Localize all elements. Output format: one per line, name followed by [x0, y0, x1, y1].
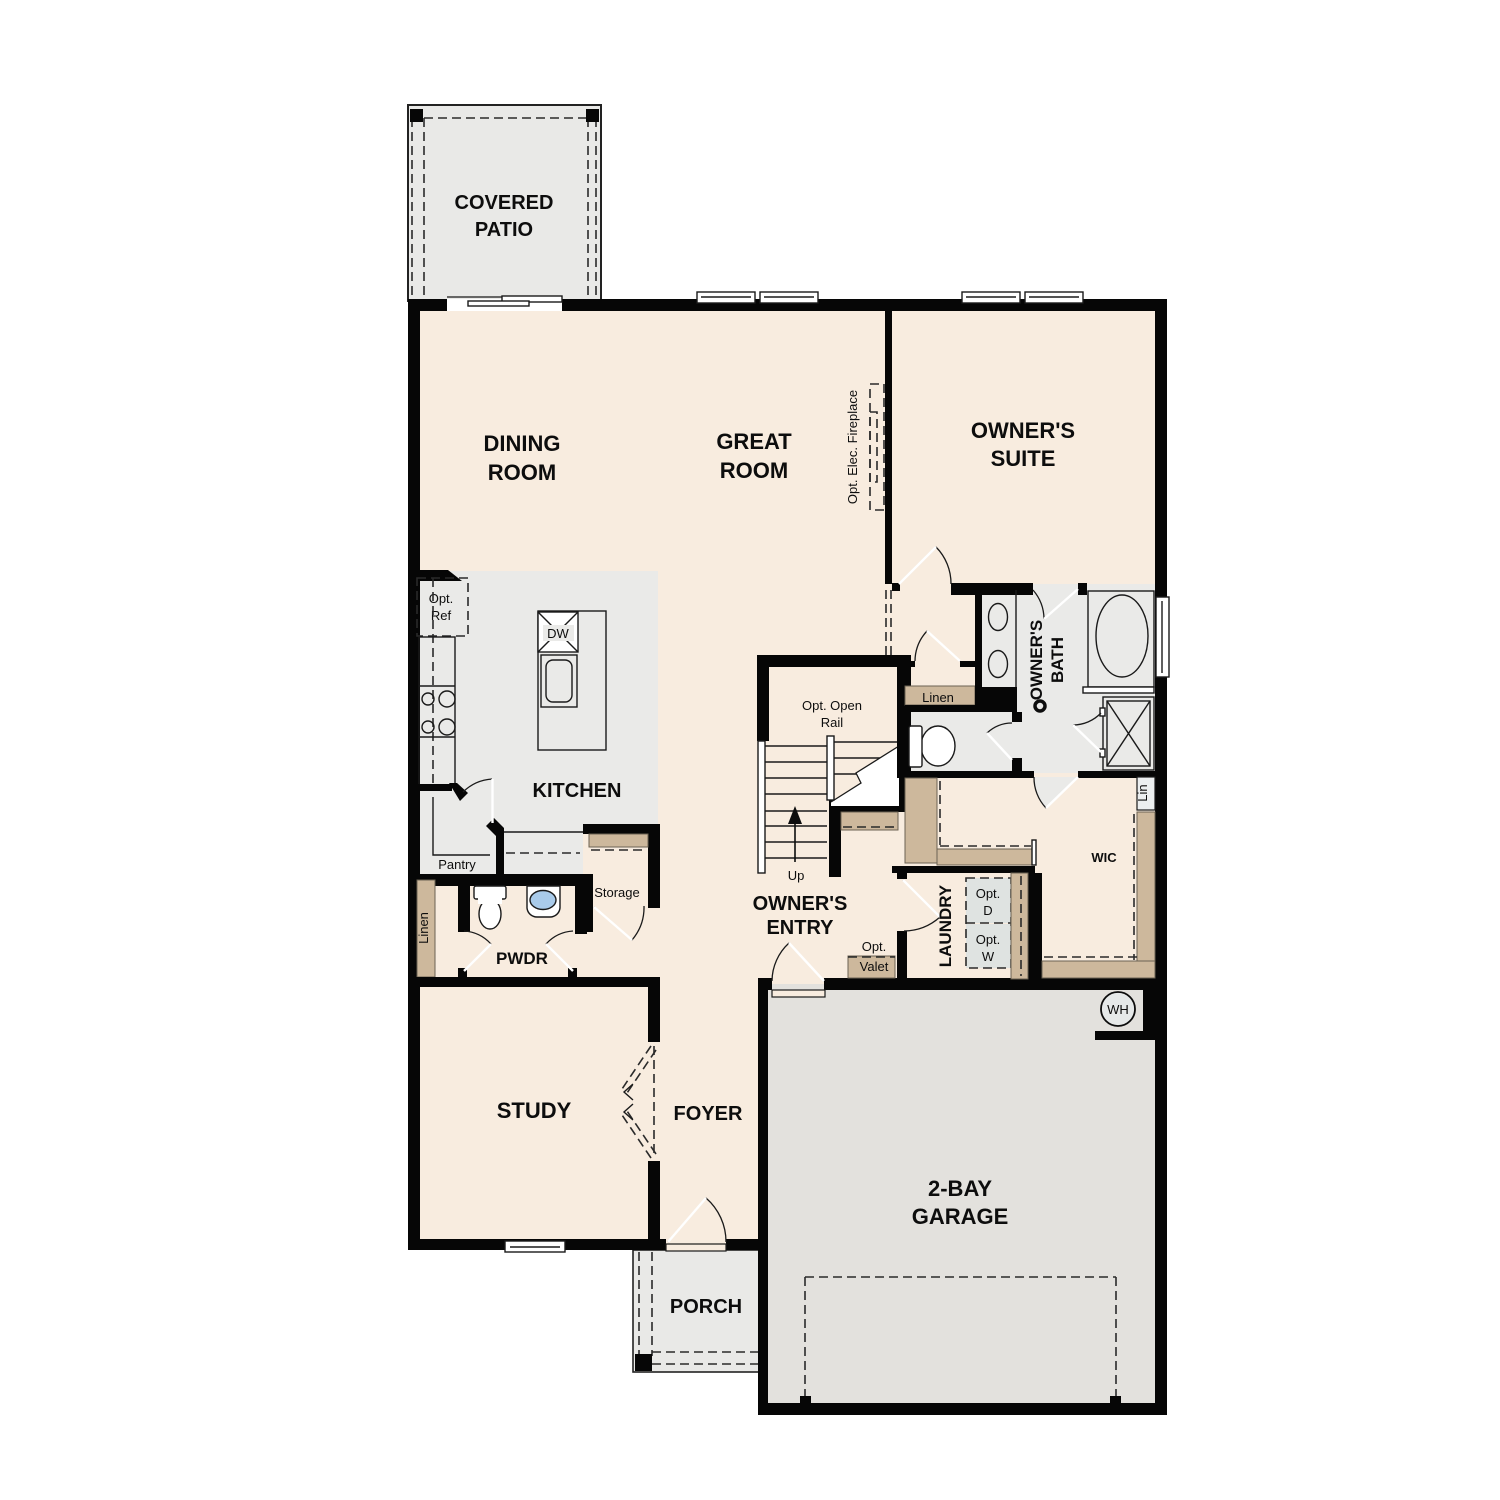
svg-text:W: W — [982, 949, 995, 964]
svg-text:OWNER'S: OWNER'S — [971, 418, 1075, 443]
svg-text:SUITE: SUITE — [991, 446, 1056, 471]
svg-text:D: D — [983, 903, 992, 918]
svg-text:DW: DW — [547, 626, 569, 641]
svg-text:PATIO: PATIO — [475, 219, 533, 241]
svg-text:ENTRY: ENTRY — [766, 917, 834, 939]
svg-text:Lin: Lin — [1135, 784, 1150, 801]
svg-text:Rail: Rail — [821, 715, 844, 730]
svg-text:GREAT: GREAT — [716, 429, 792, 454]
svg-text:BATH: BATH — [1048, 637, 1067, 683]
svg-text:OWNER'S: OWNER'S — [753, 893, 848, 915]
svg-text:WH: WH — [1107, 1002, 1129, 1017]
svg-text:FOYER: FOYER — [674, 1103, 743, 1125]
svg-text:Opt. Open: Opt. Open — [802, 698, 862, 713]
svg-text:WIC: WIC — [1091, 850, 1117, 865]
svg-text:DINING: DINING — [484, 431, 561, 456]
svg-text:LAUNDRY: LAUNDRY — [936, 884, 955, 967]
svg-text:OWNER'S: OWNER'S — [1027, 620, 1046, 701]
svg-text:COVERED: COVERED — [455, 192, 554, 214]
svg-text:PORCH: PORCH — [670, 1296, 742, 1318]
svg-text:STUDY: STUDY — [497, 1098, 572, 1123]
svg-text:Opt. Elec. Fireplace: Opt. Elec. Fireplace — [845, 390, 860, 504]
svg-text:Valet: Valet — [860, 959, 889, 974]
svg-text:Linen: Linen — [416, 912, 431, 944]
svg-text:ROOM: ROOM — [488, 460, 556, 485]
svg-text:2-BAY: 2-BAY — [928, 1176, 992, 1201]
svg-text:Pantry: Pantry — [438, 857, 476, 872]
svg-text:Storage: Storage — [594, 885, 640, 900]
svg-text:GARAGE: GARAGE — [912, 1204, 1009, 1229]
svg-text:Opt.: Opt. — [976, 932, 1001, 947]
svg-text:Ref: Ref — [431, 608, 452, 623]
svg-text:Opt.: Opt. — [976, 886, 1001, 901]
svg-text:PWDR: PWDR — [496, 949, 548, 968]
svg-text:Up: Up — [788, 868, 805, 883]
svg-text:Linen: Linen — [922, 690, 954, 705]
svg-text:Opt.: Opt. — [862, 939, 887, 954]
svg-text:KITCHEN: KITCHEN — [533, 780, 622, 802]
svg-text:ROOM: ROOM — [720, 458, 788, 483]
